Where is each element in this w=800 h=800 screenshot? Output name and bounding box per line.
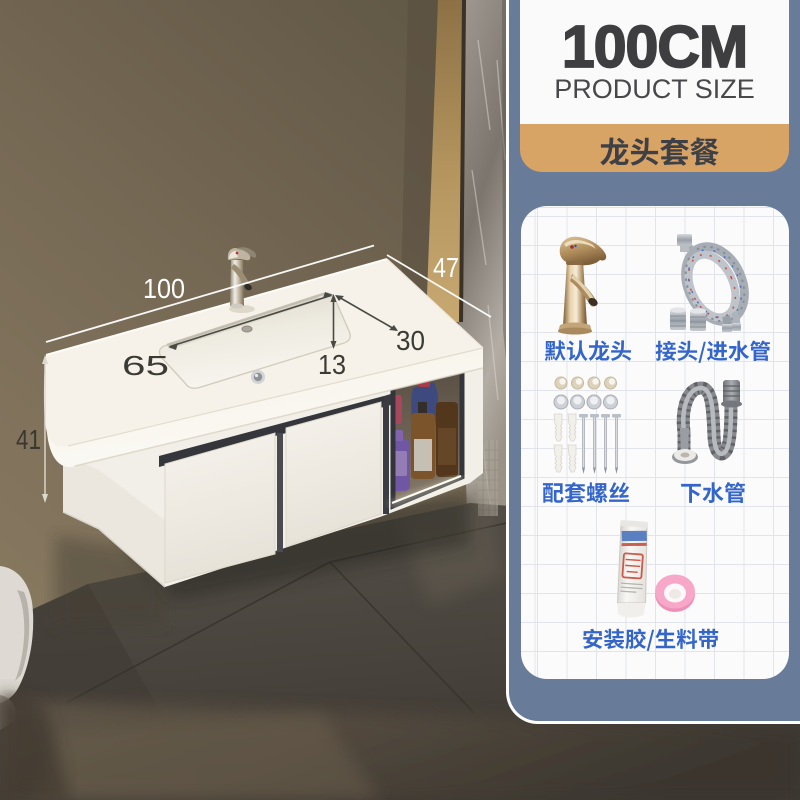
svg-text:30: 30 <box>396 325 425 356</box>
svg-text:13: 13 <box>318 349 346 380</box>
svg-text:65: 65 <box>122 350 169 381</box>
svg-text:47: 47 <box>433 252 459 283</box>
svg-text:41: 41 <box>16 424 41 455</box>
svg-text:100: 100 <box>143 273 185 304</box>
